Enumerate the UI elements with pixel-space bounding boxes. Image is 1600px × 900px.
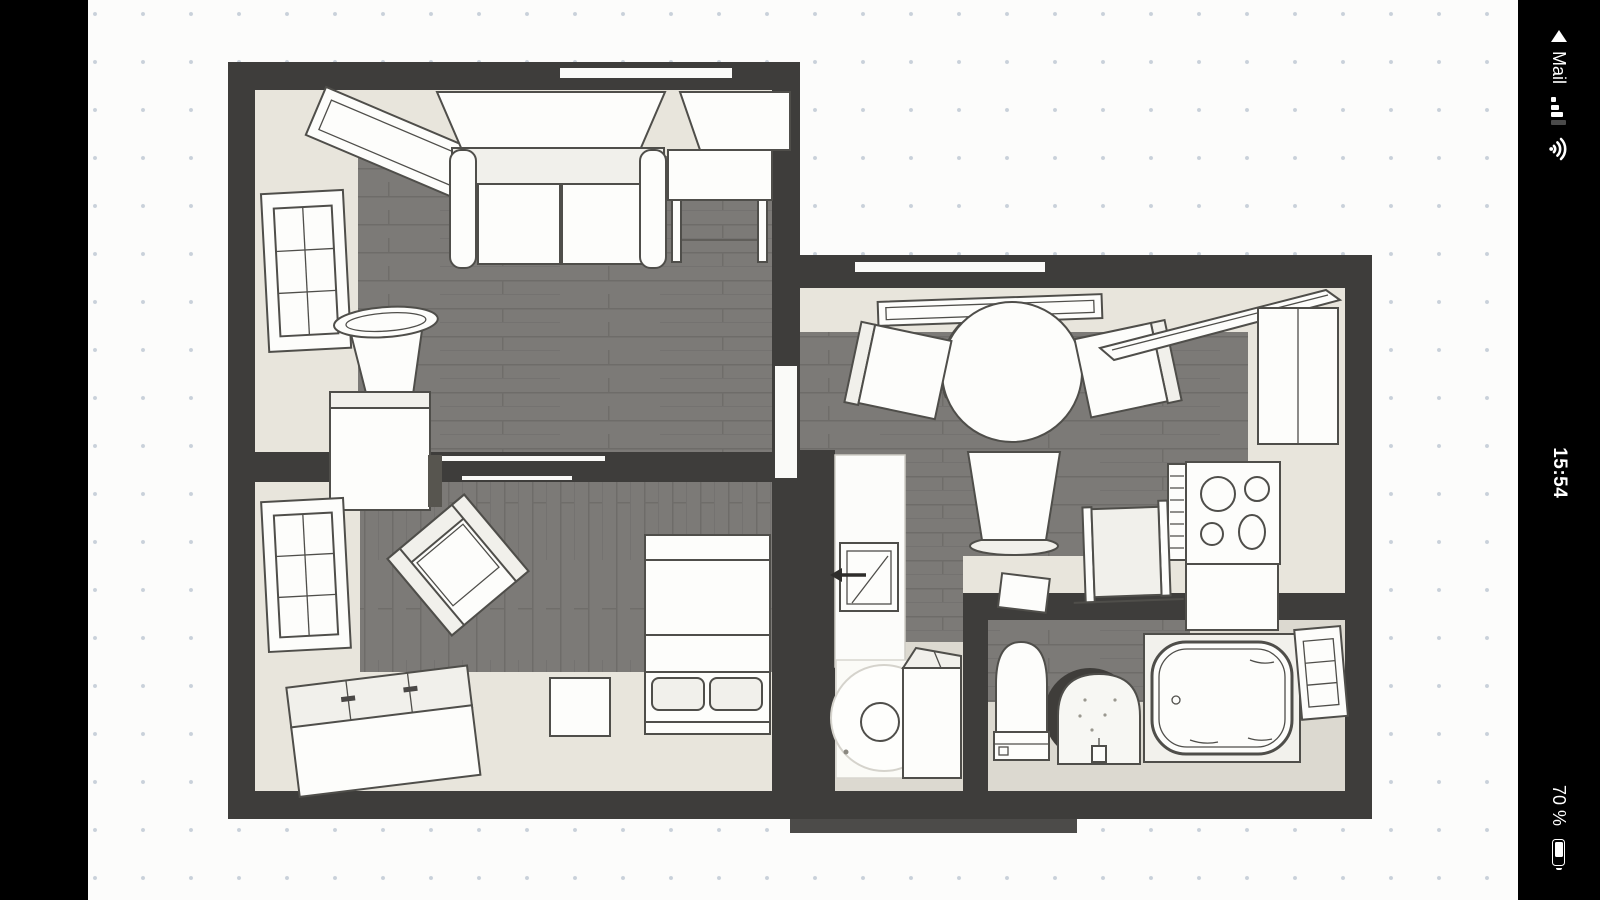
status-bar-content: Mail 15:54 70 % <box>1518 0 1600 900</box>
status-right-group: 70 % <box>1549 785 1570 870</box>
toilet <box>994 642 1049 760</box>
bed <box>645 535 770 734</box>
bathtub <box>1144 634 1300 762</box>
battery-percent-label: 70 % <box>1549 785 1570 826</box>
dining-table <box>941 302 1082 442</box>
radiator-panel <box>1070 500 1183 603</box>
kitchen-counter <box>1186 564 1278 630</box>
wall-left <box>228 62 255 819</box>
pedestal-sink <box>1058 674 1140 764</box>
wall-bottom-right-block <box>772 791 1372 819</box>
sofa <box>450 148 666 268</box>
kitchen-top-window-slit <box>855 262 1045 272</box>
floor-plan <box>0 0 1600 900</box>
cabinet <box>330 392 442 510</box>
status-time: 15:54 <box>1548 447 1570 498</box>
bedroom-window <box>261 498 351 652</box>
pillow <box>652 678 704 710</box>
dresser <box>286 666 480 797</box>
wall-bathroom-left <box>963 593 988 819</box>
cabinet-handle <box>428 455 442 507</box>
nightstand <box>550 678 610 736</box>
window-front <box>437 92 790 150</box>
faucet <box>1092 746 1106 762</box>
photo-canvas <box>0 0 1600 900</box>
wall-entry-step <box>790 819 1077 833</box>
letterbox-left <box>0 0 88 900</box>
cellular-signal-icon <box>1552 97 1567 125</box>
pillow <box>710 678 762 710</box>
dining-chair-bottom <box>968 452 1060 555</box>
sink <box>840 543 898 611</box>
status-left-group: Mail <box>1549 30 1570 161</box>
wifi-icon <box>1550 137 1569 161</box>
small-cabinet <box>998 573 1050 613</box>
status-app-label: Mail <box>1549 51 1570 84</box>
status-bar: Mail 15:54 70 % <box>1518 0 1600 900</box>
living-kitchen-doorway <box>775 366 797 478</box>
wall-right <box>1345 255 1372 819</box>
battery-icon <box>1553 839 1566 870</box>
living-top-window-slit <box>560 68 732 78</box>
divider-slit-2 <box>462 476 572 480</box>
hall-cabinet <box>903 648 961 778</box>
bathroom-window <box>1294 626 1348 720</box>
return-to-app-triangle-icon <box>1551 30 1567 42</box>
wall-bedroom-hallway <box>772 450 835 819</box>
hall-counter <box>830 455 905 667</box>
